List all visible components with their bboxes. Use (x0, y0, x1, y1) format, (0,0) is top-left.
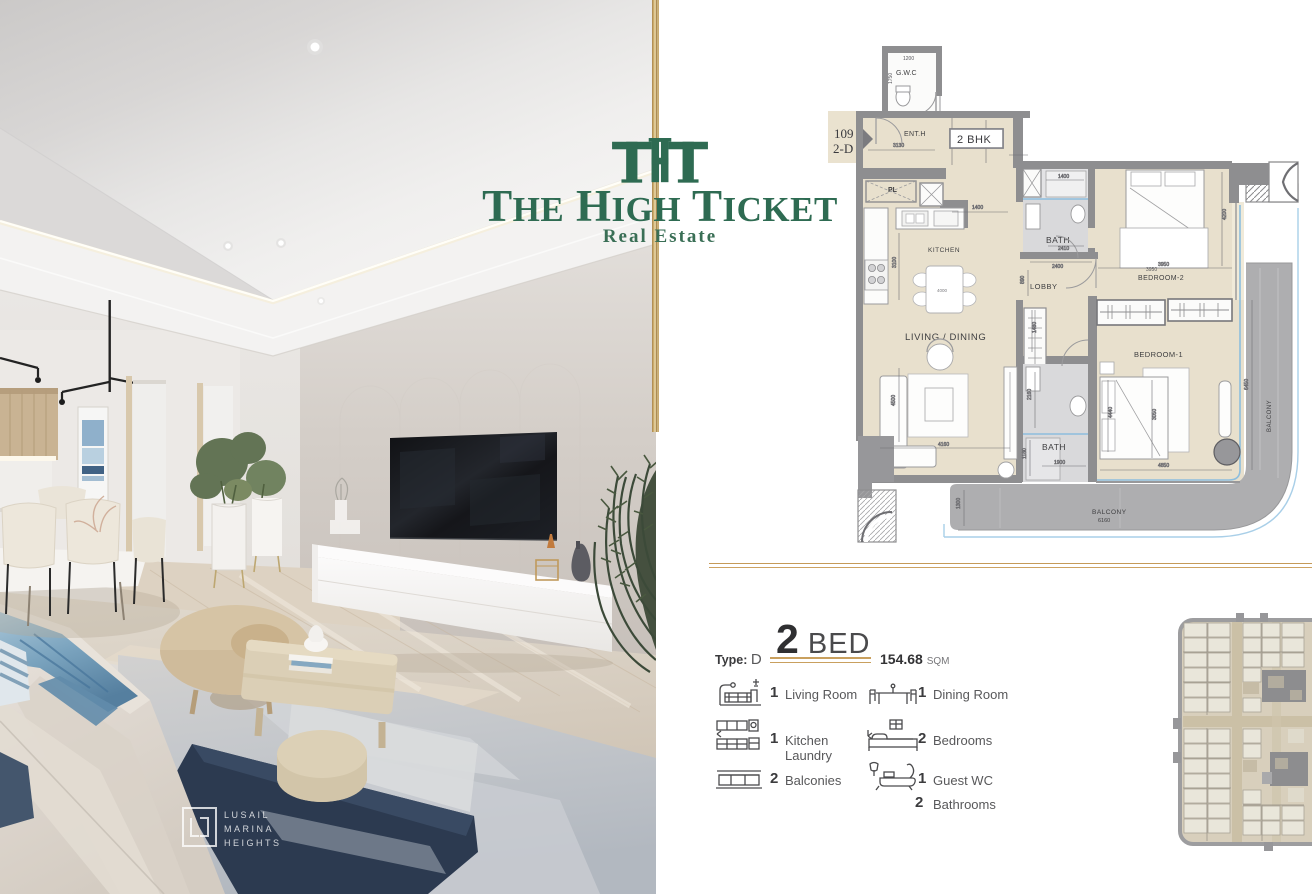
svg-text:4160: 4160 (938, 442, 949, 448)
svg-text:109: 109 (834, 126, 854, 141)
svg-text:LUSAIL: LUSAIL (224, 810, 270, 820)
svg-text:3100: 3100 (892, 257, 898, 268)
svg-text:4500: 4500 (891, 395, 897, 406)
svg-text:1180: 1180 (1022, 448, 1028, 459)
svg-text:PL: PL (888, 187, 898, 194)
svg-text:LOBBY: LOBBY (1030, 282, 1058, 291)
svg-text:3950: 3950 (1158, 262, 1169, 268)
svg-text:2410: 2410 (1058, 246, 1069, 252)
svg-text:KITCHEN: KITCHEN (928, 247, 960, 254)
svg-text:BEDROOM-2: BEDROOM-2 (1138, 275, 1184, 282)
svg-text:3130: 3130 (893, 143, 904, 149)
svg-text:1480: 1480 (1032, 322, 1038, 333)
svg-text:BEDROOM-1: BEDROOM-1 (1134, 350, 1183, 359)
svg-text:LIVING / DINING: LIVING / DINING (905, 332, 986, 343)
svg-text:2 BHK: 2 BHK (957, 134, 991, 146)
svg-text:890: 890 (1020, 275, 1026, 284)
svg-text:4000: 4000 (937, 288, 948, 293)
svg-text:BATH: BATH (1042, 442, 1066, 452)
svg-text:1900: 1900 (1054, 460, 1065, 466)
svg-text:1400: 1400 (1058, 174, 1069, 180)
svg-text:2400: 2400 (1052, 264, 1063, 270)
svg-text:BALCONY: BALCONY (1092, 509, 1127, 516)
svg-text:2160: 2160 (1027, 389, 1033, 400)
svg-text:ENT.H: ENT.H (904, 131, 926, 138)
svg-text:1300: 1300 (956, 498, 962, 509)
svg-text:6160: 6160 (1098, 518, 1110, 524)
svg-text:2-D: 2-D (833, 141, 853, 156)
svg-text:1750: 1750 (888, 73, 894, 84)
svg-text:1200: 1200 (903, 56, 914, 62)
svg-text:4850: 4850 (1158, 463, 1169, 469)
svg-text:G.W.C: G.W.C (896, 70, 917, 77)
svg-text:MARINA: MARINA (224, 824, 274, 834)
svg-text:HEIGHTS: HEIGHTS (224, 838, 282, 848)
svg-text:4200: 4200 (1222, 209, 1228, 220)
svg-text:6450: 6450 (1244, 379, 1250, 390)
svg-text:1400: 1400 (972, 205, 983, 211)
svg-text:4440: 4440 (1108, 407, 1114, 418)
svg-text:3050: 3050 (1152, 409, 1158, 420)
svg-text:BALCONY: BALCONY (1267, 400, 1273, 432)
